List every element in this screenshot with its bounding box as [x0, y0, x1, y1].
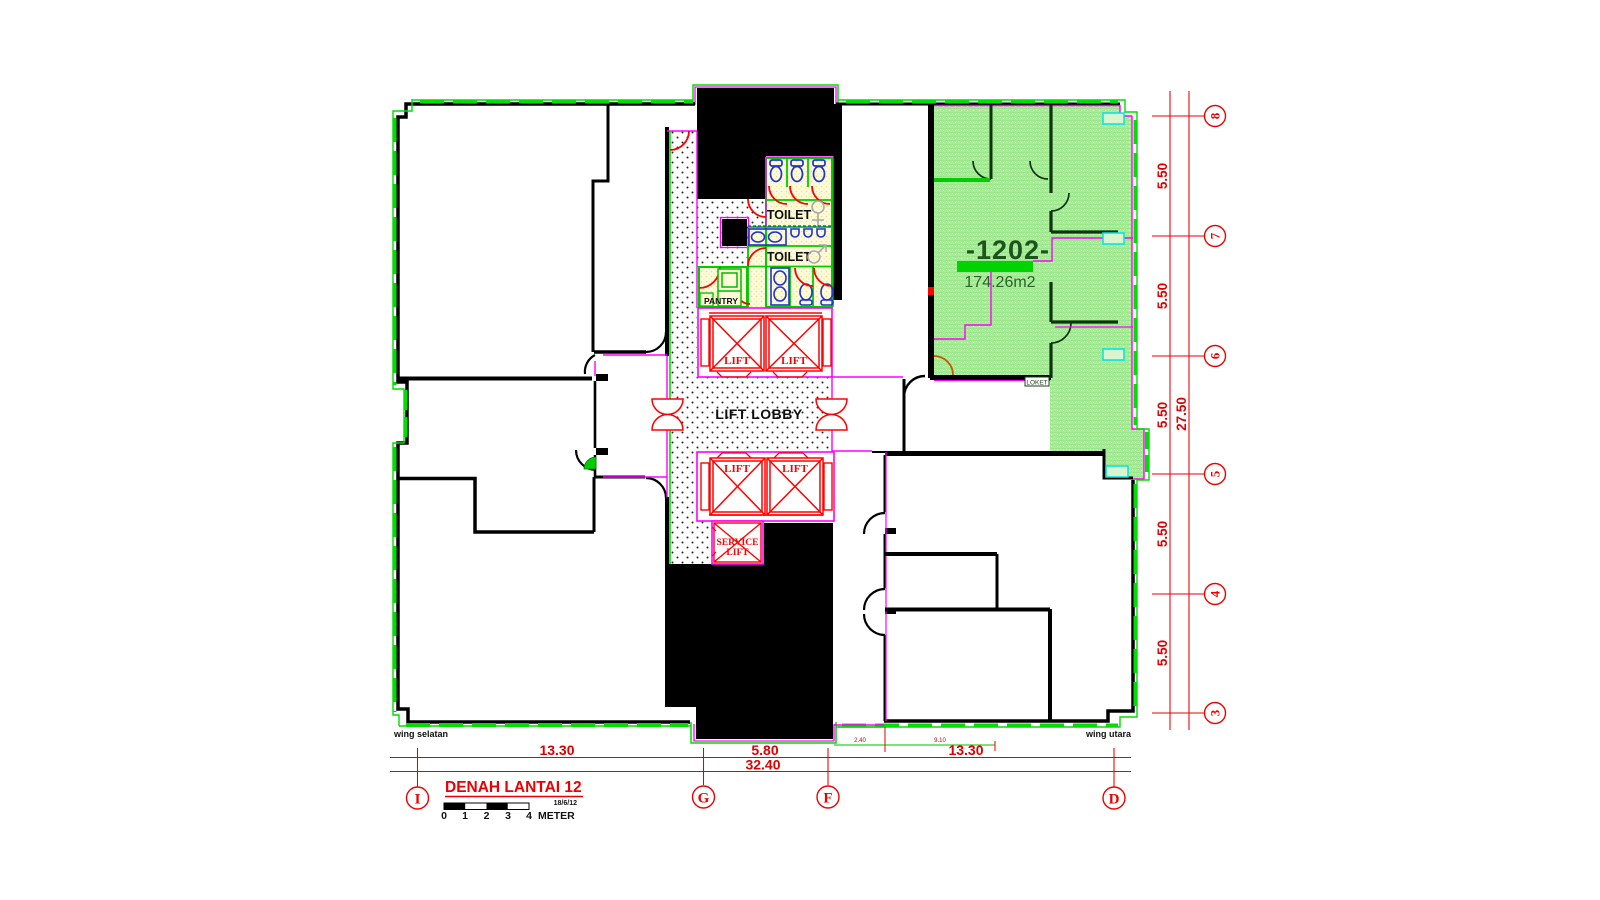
svg-text:TOILET: TOILET [767, 208, 812, 222]
svg-text:D: D [1109, 792, 1120, 808]
svg-text:4: 4 [526, 810, 532, 822]
svg-text:4: 4 [1208, 590, 1223, 597]
svg-text:LOKET: LOKET [1026, 380, 1047, 387]
svg-text:5: 5 [1208, 470, 1223, 477]
svg-text:wing utara: wing utara [1085, 729, 1132, 739]
svg-text:174.26m2: 174.26m2 [964, 274, 1035, 291]
svg-text:0: 0 [441, 810, 447, 822]
svg-text:TOILET: TOILET [767, 250, 812, 264]
svg-text:5.50: 5.50 [1155, 163, 1170, 189]
svg-text:8: 8 [1208, 112, 1223, 119]
svg-text:5.50: 5.50 [1155, 283, 1170, 309]
svg-text:2.40: 2.40 [854, 738, 866, 744]
svg-text:-1202-: -1202- [966, 235, 1050, 265]
svg-text:5.50: 5.50 [1155, 521, 1170, 547]
svg-text:32.40: 32.40 [745, 757, 780, 773]
svg-text:7: 7 [1208, 232, 1223, 239]
svg-text:27.50: 27.50 [1174, 397, 1189, 431]
svg-text:2: 2 [484, 810, 490, 822]
svg-text:LIFT: LIFT [726, 548, 749, 558]
svg-text:1: 1 [462, 810, 468, 822]
svg-text:LIFT: LIFT [724, 355, 750, 367]
svg-text:SERVICE: SERVICE [717, 538, 759, 548]
svg-text:G: G [698, 791, 710, 807]
svg-text:18/6/12: 18/6/12 [554, 800, 577, 807]
svg-text:LIFT: LIFT [782, 463, 808, 475]
svg-text:3: 3 [505, 810, 511, 822]
svg-text:6: 6 [1208, 352, 1223, 359]
svg-text:PANTRY: PANTRY [704, 296, 738, 306]
svg-text:9.10: 9.10 [934, 738, 946, 744]
svg-text:5.50: 5.50 [1155, 640, 1170, 666]
svg-text:F: F [823, 791, 832, 807]
svg-text:I: I [415, 792, 421, 808]
svg-text:DENAH LANTAI 12: DENAH LANTAI 12 [445, 779, 582, 796]
svg-text:13.30: 13.30 [539, 742, 574, 758]
svg-text:LIFT: LIFT [724, 463, 750, 475]
svg-text:13.30: 13.30 [948, 742, 983, 758]
svg-text:3: 3 [1208, 709, 1223, 716]
svg-text:LIFT LOBBY: LIFT LOBBY [715, 406, 803, 422]
svg-text:wing selatan: wing selatan [393, 729, 448, 739]
svg-text:LIFT: LIFT [781, 355, 807, 367]
svg-text:METER: METER [538, 810, 575, 822]
svg-text:5.50: 5.50 [1155, 402, 1170, 428]
